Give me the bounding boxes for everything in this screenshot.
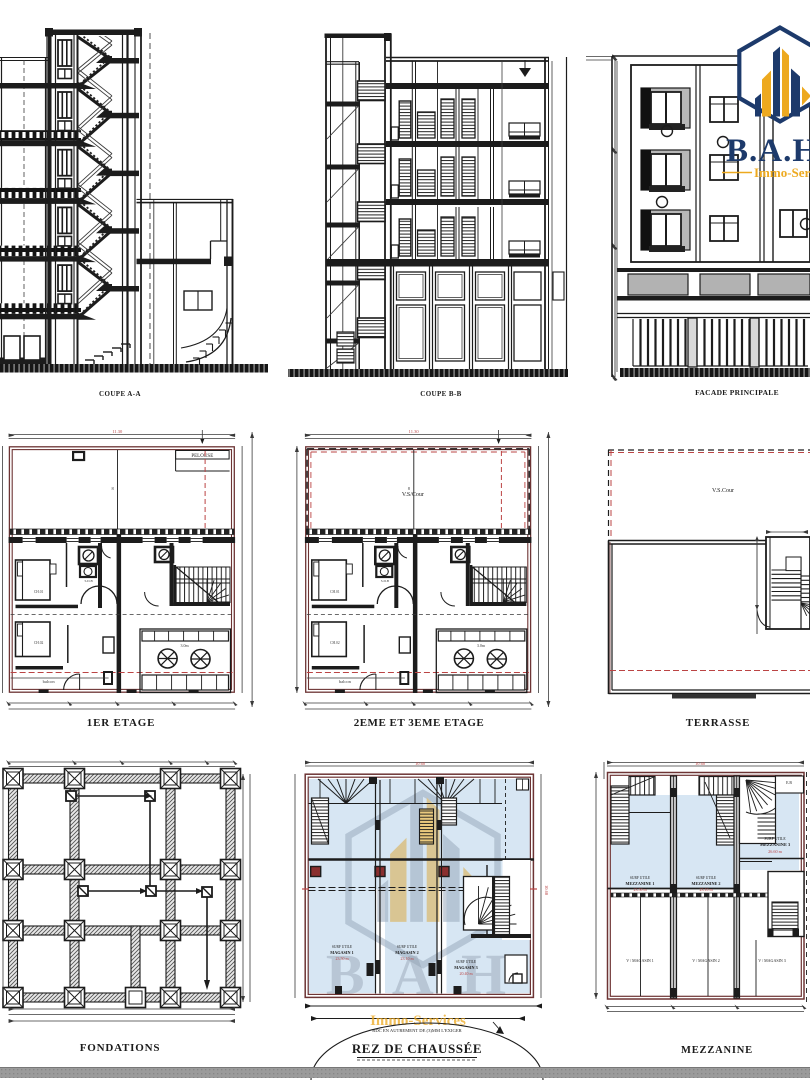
svg-text:TERRASSE: TERRASSE — [686, 717, 750, 729]
svg-text:1ER ETAGE: 1ER ETAGE — [87, 717, 155, 729]
svg-text:10.60: 10.60 — [415, 761, 426, 766]
svg-text:MEZZANINE 1: MEZZANINE 1 — [626, 881, 655, 886]
svg-text:3.0m: 3.0m — [181, 643, 190, 648]
svg-text:RDC EN AUTREMENT DE (3)MM L'EX: RDC EN AUTREMENT DE (3)MM L'EXIGER — [372, 1028, 462, 1033]
svg-text:MAGASIN 2: MAGASIN 2 — [395, 950, 418, 955]
svg-text:E.B: E.B — [786, 781, 792, 785]
svg-text:MAGASIN 3: MAGASIN 3 — [454, 965, 477, 970]
svg-text:SURF UTILE: SURF UTILE — [630, 876, 651, 880]
svg-text:balcon: balcon — [43, 679, 56, 684]
svg-text:V / MAGASIN 1: V / MAGASIN 1 — [626, 958, 654, 963]
svg-text:PELOUSE: PELOUSE — [191, 454, 213, 459]
svg-text:V.S/Cour: V.S/Cour — [402, 492, 424, 498]
svg-text:balcon: balcon — [339, 679, 352, 684]
svg-text:FONDATIONS: FONDATIONS — [80, 1042, 161, 1054]
svg-text:SURF UTILE: SURF UTILE — [332, 945, 353, 949]
svg-text:MEZZANINE: MEZZANINE — [681, 1045, 753, 1056]
svg-text:26.60 m: 26.60 m — [768, 849, 782, 854]
svg-text:FACADE PRINCIPALE: FACADE PRINCIPALE — [695, 388, 779, 397]
svg-text:V / MAGASIN 3: V / MAGASIN 3 — [758, 958, 786, 963]
svg-text:23.10 m: 23.10 m — [699, 887, 713, 892]
svg-text:REZ DE CHAUSSÉE: REZ DE CHAUSSÉE — [352, 1041, 482, 1056]
svg-text:COUPE A-A: COUPE A-A — [99, 390, 141, 398]
svg-text:2EME ET 3EME ETAGE: 2EME ET 3EME ETAGE — [354, 717, 485, 729]
svg-text:11.30: 11.30 — [112, 429, 123, 434]
svg-text:SURF UTILE: SURF UTILE — [764, 837, 786, 841]
svg-text:11.30: 11.30 — [409, 429, 420, 434]
svg-text:CH.01: CH.01 — [330, 590, 340, 594]
svg-text:COUPE B-B: COUPE B-B — [420, 390, 462, 398]
svg-text:B.A.H: B.A.H — [726, 133, 810, 169]
svg-text:23.50 m: 23.50 m — [633, 887, 647, 892]
svg-text:10.60: 10.60 — [544, 885, 549, 896]
svg-text:CH.01: CH.01 — [34, 590, 44, 594]
svg-text:V / MAGASIN 2: V / MAGASIN 2 — [692, 958, 720, 963]
svg-text:3.0m: 3.0m — [477, 643, 486, 648]
svg-text:SURF UTILE: SURF UTILE — [456, 960, 477, 964]
svg-text:SURF UTILE: SURF UTILE — [397, 945, 418, 949]
svg-text:MEZZANINE 2: MEZZANINE 2 — [692, 881, 721, 886]
svg-text:CH.02: CH.02 — [34, 641, 44, 645]
svg-text:V.S.Cour: V.S.Cour — [712, 488, 734, 494]
svg-text:23.10 m: 23.10 m — [400, 956, 414, 961]
svg-text:S.D.B: S.D.B — [381, 579, 390, 583]
svg-text:SURF UTILE: SURF UTILE — [696, 876, 717, 880]
svg-text:S.D.B: S.D.B — [84, 579, 93, 583]
svg-text:MEZZANINE 3: MEZZANINE 3 — [760, 842, 791, 847]
svg-text:10.60: 10.60 — [695, 761, 706, 766]
svg-text:Immo-Services: Immo-Services — [754, 165, 810, 180]
svg-text:CH.02: CH.02 — [330, 641, 340, 645]
svg-text:23.50 m: 23.50 m — [335, 956, 349, 961]
svg-text:20.40 m: 20.40 m — [459, 971, 473, 976]
svg-text:MAGASIN 1: MAGASIN 1 — [330, 950, 353, 955]
